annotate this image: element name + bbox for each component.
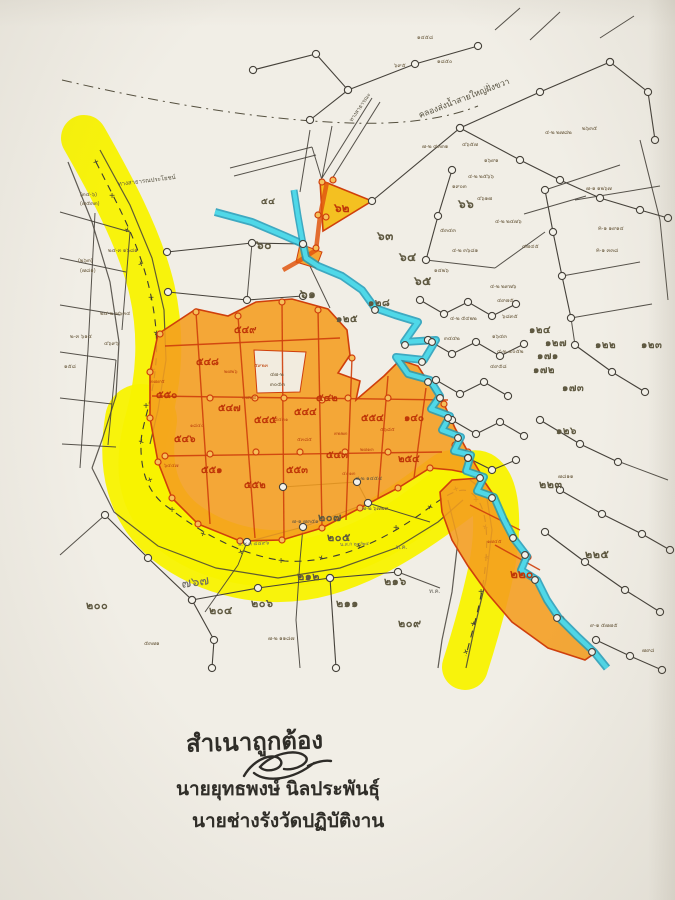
parcel-label: ๕๕๔ bbox=[361, 413, 384, 424]
surveyor-title-text: นายช่างรังวัดปฏิบัติงาน bbox=[192, 806, 384, 836]
parcel-label: ๔-๒ ๑๔๕๔ bbox=[355, 476, 382, 482]
parcel-label: ๖๙๕ bbox=[394, 63, 406, 69]
parcel-label: ๕๔๗ bbox=[218, 403, 241, 414]
parcel-label: ๑๔๕๘ bbox=[417, 35, 433, 41]
svg-text:+: + bbox=[109, 191, 115, 202]
parcel-label: ๑๒๘ bbox=[368, 298, 390, 309]
parcel-label: ท.ค. bbox=[396, 545, 408, 551]
parcel-label: ค-๑ ๓๓๘ bbox=[596, 248, 618, 254]
parcel-label: ๕๔๙ bbox=[234, 325, 257, 336]
parcel-label: ค-๑ ๑๙๑๔ bbox=[598, 226, 624, 232]
parcel-label: ๔๗๔๕ bbox=[522, 244, 539, 250]
parcel-label: ๗๙๘ bbox=[642, 648, 654, 654]
parcel-label: ๒๐๔ bbox=[209, 605, 233, 617]
parcel-label: ๑๗๔๕ bbox=[487, 539, 502, 545]
parcel-label: ๒๔-๒ ๗๖๓๔ bbox=[100, 311, 130, 317]
parcel-label: ๔-๒ ๒๔๗๖ bbox=[495, 219, 522, 225]
parcel-label: ๕๓๔๓ bbox=[440, 228, 456, 234]
parcel-label: คลองส่งน้ำสายใหญ่ฝั่งขวา bbox=[417, 75, 511, 120]
surveyor-name-text: นายยุทธพงษ์ นิลประพันธุ์ bbox=[176, 774, 380, 804]
parcel-label: ๑๗๓ bbox=[562, 383, 584, 394]
parcel-label: (๓๔-๖) bbox=[80, 192, 97, 198]
parcel-label: (๒๖๓) bbox=[78, 258, 93, 264]
parcel-label: ๗๘๑๑ bbox=[558, 474, 573, 480]
parcel-label: ๑๔๐ bbox=[404, 413, 424, 424]
parcel-label: ๒๐๙ bbox=[398, 618, 422, 630]
parcel-label: ๒๒๓ bbox=[539, 479, 563, 491]
parcel-label: (๗๕๓๓) bbox=[80, 201, 100, 207]
parcel-label: ๖๘๓๕ bbox=[502, 314, 518, 320]
parcel-label: ๕๔ bbox=[261, 196, 276, 206]
parcel-label: ๖๕ bbox=[413, 274, 432, 288]
parcel-label: ๔-๒ ๒๙๗๖ bbox=[490, 284, 517, 290]
parcel-label: ๑๗๑ bbox=[537, 351, 559, 362]
parcel-label: ๒๐๐ bbox=[86, 600, 108, 612]
parcel-label: ๒๐๗ bbox=[318, 512, 342, 524]
parcel-label: น.ส.ก ๒๙/๒๔ bbox=[340, 541, 369, 548]
parcel-label: ๔๐๑๓ bbox=[342, 471, 356, 477]
parcel-label: ๑๒๗ bbox=[545, 338, 567, 349]
parcel-label: ๔-๒ ๒๗๘๒ bbox=[545, 130, 572, 136]
parcel-label: ๕๙๒๓ bbox=[254, 363, 269, 369]
parcel-label: ๕๕๒ bbox=[244, 480, 266, 491]
parcel-label: ๔๖๑๗ bbox=[477, 196, 492, 202]
parcel-label: ๔๙๕๘ bbox=[490, 364, 507, 370]
svg-text:+: + bbox=[478, 587, 484, 598]
parcel-label: ๒๐๖ bbox=[251, 598, 273, 610]
parcel-label: ๖๑ bbox=[299, 287, 316, 301]
scanned-document-page: +++++++++++++++++++++++++ ๖๐๖๑๖๒๖๓๖๔๖๕๖๖… bbox=[0, 0, 675, 900]
parcel-label: ๒๗๒๖ bbox=[224, 369, 238, 375]
parcel-label: ๔-๒ ๔๐๕๒ bbox=[497, 349, 524, 355]
parcel-label: ๗-๑ ๗๓๕๑ bbox=[292, 519, 319, 525]
parcel-label: ๖๒ bbox=[333, 201, 350, 215]
parcel-label: ๗-๑ ๑๒๖๗ bbox=[586, 186, 612, 192]
parcel-label: ๗-๒ ๖๗๒๙ bbox=[362, 506, 388, 512]
parcel-label: ๗-๒ ๔๓๓๑ bbox=[422, 144, 448, 150]
parcel-label: ๒๔-๓ ๑๖๘๑ bbox=[108, 248, 138, 254]
parcel-label: ๓๒๒๓ bbox=[334, 431, 348, 437]
parcel-label: ๑๒๔ bbox=[529, 325, 551, 336]
parcel-label: ๑๖๔๓ bbox=[492, 334, 507, 340]
parcel-label: ๕๔๓ bbox=[326, 450, 348, 461]
parcel-label: ๒๕๔ bbox=[398, 454, 420, 465]
parcel-label: ๒๗๑๓ bbox=[360, 447, 374, 453]
parcel-label: ๑๗๒ bbox=[533, 365, 555, 376]
parcel-label: ๑๖๙๑ bbox=[484, 158, 499, 164]
parcel-label: ๖๔๔๗ bbox=[164, 463, 179, 469]
svg-text:+: + bbox=[169, 505, 175, 516]
parcel-label: ๗-๒ ๑๑๘๗ bbox=[268, 636, 294, 642]
parcel-label: ๘๔๓๑ bbox=[274, 417, 288, 423]
certification-block: สำเนาถูกต้อง นายยุทธพงษ์ นิลประพันธุ์ นา… bbox=[0, 690, 675, 900]
parcel-label: ๒๒๐ bbox=[510, 567, 533, 581]
parcel-label: ๕๔๘ bbox=[196, 357, 219, 368]
parcel-label: ๕๖๘๕ bbox=[380, 427, 395, 433]
parcel-label: ๕๕๐ bbox=[156, 390, 177, 401]
parcel-label: ๒-๓ ๖๑๔ bbox=[70, 334, 92, 340]
parcel-label: ท.ค. bbox=[429, 589, 441, 595]
parcel-label: ๕๔๖ bbox=[174, 434, 196, 445]
parcel-label: ๕๕๓ bbox=[286, 465, 308, 476]
parcel-label: ๔-๒ ๒๕๖๖ bbox=[468, 174, 494, 180]
parcel-label: ๓๗๙๕ bbox=[150, 379, 165, 385]
svg-text:+: + bbox=[393, 523, 399, 534]
parcel-label: ๒๒๕ bbox=[585, 549, 610, 561]
parcel-label: ๑๘๕๐ bbox=[437, 59, 452, 65]
parcel-label: ๖๖ bbox=[457, 197, 474, 211]
parcel-label: ๒๑๑ bbox=[336, 598, 359, 610]
parcel-label: ๑๒๓ bbox=[641, 340, 662, 351]
parcel-label: ๙-๑ ๕๗๗๕ bbox=[590, 623, 617, 629]
parcel-label: ๑๒๕ bbox=[336, 314, 358, 325]
parcel-label: ๖๓ bbox=[376, 229, 394, 243]
parcel-label: ๔๖๙๖ bbox=[104, 341, 120, 347]
parcel-label: ๓๗๒๔ bbox=[242, 395, 256, 401]
parcel-label: ๓๔๔๒ bbox=[444, 336, 460, 342]
parcel-label: ๕๓๗๑ bbox=[144, 641, 160, 647]
parcel-label: ทางสาธารณะ bbox=[348, 92, 372, 124]
parcel-label: ๑๒๖ bbox=[556, 426, 577, 437]
parcel-label: ๒๑๖ bbox=[384, 576, 407, 588]
parcel-label: ๖๔ bbox=[398, 250, 417, 264]
parcel-label: ๔๖๕๗ bbox=[462, 142, 478, 148]
parcel-label: ๑๕๘ bbox=[64, 364, 76, 370]
svg-text:+: + bbox=[278, 556, 284, 567]
parcel-label: ๔๙๗๕ bbox=[497, 298, 514, 304]
parcel-label: ๓๐๕๓ bbox=[270, 382, 285, 388]
parcel-label: ๑๒๒ bbox=[595, 340, 616, 351]
cadastral-map-image: +++++++++++++++++++++++++ ๖๐๖๑๖๒๖๓๖๔๖๕๖๖… bbox=[0, 0, 675, 690]
parcel-label: ๒๖๓๕ bbox=[582, 126, 597, 132]
parcel-label: ๑๙๐๓ bbox=[452, 184, 467, 190]
parcel-label: ๕๓๘๕ bbox=[297, 437, 312, 443]
parcel-label: ๖๐ bbox=[255, 238, 272, 252]
parcel-label: ๕๔๔ bbox=[294, 407, 317, 418]
svg-text:+: + bbox=[148, 293, 154, 304]
parcel-label: ๕๕๑ bbox=[201, 465, 222, 476]
parcel-label: ๑๔๒๖ bbox=[434, 268, 449, 274]
parcel-label: ๔-๒ ๓๖๘๑ bbox=[452, 248, 478, 254]
parcel-label: ๑๘๔๐ bbox=[190, 423, 204, 429]
parcel-label: ๒๑๒ bbox=[297, 571, 320, 583]
parcel-label: ๔๗-๒ bbox=[270, 372, 284, 378]
parcel-label: ๕๔๒ bbox=[316, 393, 338, 404]
parcel-label: (๗๘๑) bbox=[80, 268, 96, 274]
parcel-label: ๔-๒ ๕๔๒๒ bbox=[450, 316, 477, 322]
svg-text:+: + bbox=[143, 401, 149, 412]
